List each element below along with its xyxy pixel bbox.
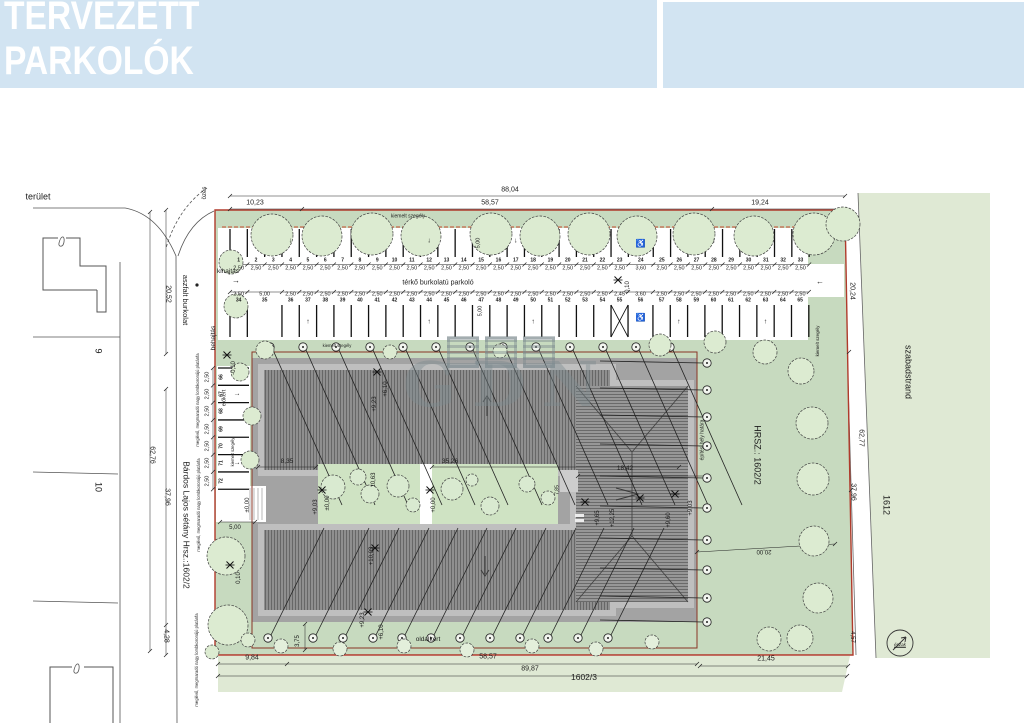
stall-dim: 2,50 <box>205 423 211 434</box>
dim-984: 9,84 <box>245 655 259 662</box>
stall-number: 45 <box>444 299 450 304</box>
stall-dim: 2,50 <box>580 266 591 272</box>
stall-arrow-icon: ↑ <box>764 319 768 326</box>
stall-number: 51 <box>548 299 554 304</box>
dim-6276: 62,76 <box>149 446 156 464</box>
stall-dim: 2,50 <box>389 266 400 272</box>
stall-number: 7 <box>341 258 344 263</box>
elev-965: +9,65 <box>595 510 601 525</box>
stall-number: 62 <box>745 299 751 304</box>
dim-428: 4,28 <box>163 629 170 643</box>
elev-1003-south: +10,03 <box>369 547 375 566</box>
stall-number: 26 <box>676 258 682 263</box>
plan-labels: terület özés 88,04 10,23 58,57 19,24 kie… <box>0 0 1024 723</box>
stall-number: 34 <box>236 299 242 304</box>
stall-arrow-icon: ↓ <box>712 238 716 245</box>
stall-dim: 2,50 <box>303 292 314 298</box>
label-oldalkert: oldalkert <box>416 637 441 644</box>
stall-dim: 2,50 <box>372 292 383 298</box>
stall-dim: 2,50 <box>205 475 211 486</box>
stall-number: 39 <box>340 299 346 304</box>
stall-dim: 2,50 <box>320 292 331 298</box>
stall-dim: 2,50 <box>691 292 702 298</box>
stall-dim: 2,50 <box>709 266 720 272</box>
dim-500-row1: 5,00 <box>476 238 482 249</box>
accessible-parking-icon: ♿ <box>636 240 646 248</box>
stall-number: 60 <box>711 299 717 304</box>
label-kiemelt-top: kiemelt szegély <box>391 215 425 220</box>
stall-dim: 2,50 <box>268 266 279 272</box>
elev-p000-court: +0,00 <box>431 497 437 512</box>
label-kiemelt-mid: kiemelt szegély <box>323 344 352 348</box>
elev-610-north: +6,10 <box>383 381 389 396</box>
stall-dim: 2,50 <box>205 441 211 452</box>
stall-number: 38 <box>322 299 328 304</box>
stall-dim: 2,50 <box>708 292 719 298</box>
label-parcel-9: 9 <box>94 348 103 353</box>
stall-number: 59 <box>693 299 699 304</box>
stall-dim: 2,50 <box>205 371 211 382</box>
stall-number: 49 <box>513 299 519 304</box>
accessible-parking-icon: ♿ <box>636 314 646 322</box>
stall-dim: 2,50 <box>285 266 296 272</box>
stall-dim: 2,50 <box>441 266 452 272</box>
elev-903-a: +9,03 <box>313 499 319 514</box>
stall-dim: 2,50 <box>337 266 348 272</box>
stall-number: 54 <box>600 299 606 304</box>
stall-dim: 2,50 <box>760 266 771 272</box>
stall-number: 29 <box>728 258 734 263</box>
stall-dim: 2,50 <box>795 292 806 298</box>
stall-number: 9 <box>376 258 379 263</box>
stall-number: 5 <box>307 258 310 263</box>
stall-arrow-icon: ↑ <box>427 319 431 326</box>
elev-000-court: ±0,00 <box>325 496 331 511</box>
dim-500-left: 5,00 <box>229 525 241 531</box>
stall-arrow-icon: ↓ <box>289 238 293 245</box>
stall-number: 18 <box>530 258 536 263</box>
stall-dim: 2,50 <box>407 292 418 298</box>
stall-number: 58 <box>676 299 682 304</box>
stall-number: 53 <box>582 299 588 304</box>
stall-dim: 2,50 <box>458 266 469 272</box>
stall-number: 55 <box>617 299 623 304</box>
stall-dim: 2,50 <box>407 266 418 272</box>
stall-dim: 2,50 <box>424 266 435 272</box>
stall-arrow-icon: → <box>234 460 241 467</box>
elev-z010-a: 0,10 <box>625 281 631 293</box>
stall-number: 33 <box>798 258 804 263</box>
label-behajtas: behajtás <box>211 326 218 351</box>
stall-dim: 2,50 <box>233 266 244 272</box>
stall-number: 31 <box>763 258 769 263</box>
stall-dim: 2,50 <box>205 389 211 400</box>
stall-dim: 2,50 <box>528 266 539 272</box>
label-bardos: Bárdos Lajos sétány Hrsz.:1602/2 <box>182 461 191 589</box>
note-platan-2: meglévő, megmaradó nagy lombkoronájú pla… <box>197 458 201 551</box>
label-terulet: terület <box>25 193 50 202</box>
stall-number: 52 <box>565 299 571 304</box>
stall-arrow-icon: ↑ <box>306 319 310 326</box>
stall-number: 13 <box>444 258 450 263</box>
dim-2024: 20,24 <box>849 282 856 300</box>
stall-number: 25 <box>659 258 665 263</box>
dim-8804: 88,04 <box>501 187 519 194</box>
label-parcel-1602-3: 1602/3 <box>571 673 597 682</box>
stall-dim: 5,00 <box>259 292 270 298</box>
stall-number: 1 <box>237 258 240 263</box>
stall-dim: 2,50 <box>476 292 487 298</box>
elev-903-east: +9,03 <box>688 500 694 515</box>
stall-number: 24 <box>638 258 644 263</box>
stall-number: 42 <box>392 299 398 304</box>
stall-number: 40 <box>357 299 363 304</box>
label-parcel-10: 10 <box>94 482 103 492</box>
stall-arrow-icon: ↓ <box>427 238 431 245</box>
dim-5857-top: 58,57 <box>481 200 499 207</box>
stall-number: 22 <box>600 258 606 263</box>
stall-number: 6 <box>324 258 327 263</box>
label-aszfalt: aszfalt burkolat <box>181 275 189 325</box>
stall-number: 43 <box>409 299 415 304</box>
stall-number: 32 <box>780 258 786 263</box>
stall-dim: 2,50 <box>510 292 521 298</box>
stall-dim: 2,50 <box>372 266 383 272</box>
stall-number: 65 <box>797 299 803 304</box>
elev-000-corridor: ±0,00 <box>245 498 251 513</box>
stall-dim: 2,50 <box>476 266 487 272</box>
stall-dim: 2,50 <box>545 292 556 298</box>
label-terko: térkő burkolatú parkoló <box>402 280 473 287</box>
note-platan-3: meglévő, megmaradó nagy lombkoronájú pla… <box>195 613 199 706</box>
stall-number: 67 <box>220 391 225 397</box>
label-szabadstrand: szabadstrand <box>904 345 913 399</box>
elev-z010-b: 0,10 <box>236 572 242 584</box>
stall-number: 69 <box>220 426 225 432</box>
stall-number: 36 <box>288 299 294 304</box>
stall-dim: 2,50 <box>726 266 737 272</box>
dim-835: 8,35 <box>281 459 294 466</box>
stall-dim: 2,50 <box>743 266 754 272</box>
elev-923-north: +9,23 <box>372 396 378 411</box>
stall-number: 61 <box>728 299 734 304</box>
stall-dim: 2,50 <box>795 266 806 272</box>
stall-number: 70 <box>220 443 225 449</box>
aisle-arrow-icon: ← <box>816 278 824 286</box>
stall-number: 30 <box>746 258 752 263</box>
stall-dim: 2,50 <box>355 266 366 272</box>
stall-dim: 2,50 <box>777 292 788 298</box>
stall-number: 11 <box>409 258 414 263</box>
site-plan-page: TERVEZETT PARKOLÓK <box>0 0 1024 723</box>
stall-dim: 2,50 <box>493 266 504 272</box>
stall-arrow-icon: ↑ <box>677 319 681 326</box>
stall-number: 10 <box>392 258 398 263</box>
stall-number: 41 <box>374 299 380 304</box>
stall-number: 20 <box>565 258 571 263</box>
dim-1842: 18,42 <box>617 466 633 473</box>
stall-dim: 2,50 <box>614 266 625 272</box>
stall-dim: 2,50 <box>320 266 331 272</box>
stall-dim: 2,50 <box>674 266 685 272</box>
stall-dim: 2,50 <box>233 292 244 298</box>
stall-dim: 2,50 <box>424 292 435 298</box>
stall-number: 4 <box>289 258 292 263</box>
stall-dim: 2,50 <box>657 266 668 272</box>
label-kiemelt-right: kiemelt szegély <box>816 326 821 357</box>
stall-dim: 2,45 <box>614 292 625 298</box>
dim-3526: 35,26 <box>442 459 458 466</box>
stall-number: 28 <box>711 258 717 263</box>
elev-923-south: +9,23 <box>360 612 366 627</box>
stall-number: 44 <box>426 299 432 304</box>
stall-number: 3 <box>272 258 275 263</box>
stall-dim: 2,50 <box>493 292 504 298</box>
dim-2000: 20,00 <box>756 548 771 554</box>
stall-dim: 2,50 <box>778 266 789 272</box>
stall-number: 46 <box>461 299 467 304</box>
stall-arrow-icon: ↓ <box>514 238 518 245</box>
elev-960: +9,60 <box>666 512 672 527</box>
stall-number: 57 <box>659 299 665 304</box>
dim-6277: 62,77 <box>858 429 865 447</box>
stall-number: 15 <box>478 258 484 263</box>
stall-dim: 2,50 <box>303 266 314 272</box>
stall-number: 72 <box>220 478 225 484</box>
stall-number: 71 <box>220 460 225 466</box>
stall-dim: 2,50 <box>562 266 573 272</box>
stall-dim: 2,50 <box>597 266 608 272</box>
dim-1924: 19,24 <box>751 200 769 207</box>
dim-1023: 10,23 <box>246 200 264 207</box>
stall-number: 19 <box>548 258 554 263</box>
stall-dim: 2,50 <box>528 292 539 298</box>
stall-number: 47 <box>478 299 484 304</box>
stall-number: 35 <box>262 299 268 304</box>
stall-number: 16 <box>496 258 502 263</box>
stall-dim: 2,50 <box>337 292 348 298</box>
stall-dim: 2,50 <box>656 292 667 298</box>
stall-arrow-icon: ↑ <box>531 319 535 326</box>
stall-dim: 2,50 <box>674 292 685 298</box>
stall-dim: 2,50 <box>355 292 366 298</box>
aisle-arrow-icon: → <box>232 277 240 285</box>
dim-1063: 10,63 <box>371 472 377 487</box>
stall-dim: 2,50 <box>545 266 556 272</box>
stall-dim: 2,50 <box>458 292 469 298</box>
stall-number: 12 <box>426 258 432 263</box>
stall-number: 23 <box>617 258 623 263</box>
stall-number: 37 <box>305 299 311 304</box>
dim-3796-left: 37,96 <box>164 488 171 506</box>
stall-number: 17 <box>513 258 519 263</box>
stall-dim: 2,50 <box>691 266 702 272</box>
stall-dim: 2,50 <box>510 266 521 272</box>
dim-2052: 20,52 <box>165 285 172 303</box>
stall-dim: 3,60 <box>635 266 646 272</box>
stall-dim: 2,50 <box>597 292 608 298</box>
elev-m010-a: -0,10 <box>231 361 237 375</box>
stall-dim: 2,50 <box>441 292 452 298</box>
dim-375: 3,75 <box>295 635 301 647</box>
label-parcel-1612: 1612 <box>882 495 891 515</box>
stall-arrow-icon: → <box>234 390 241 397</box>
dim-3796-right: 37,96 <box>850 483 857 501</box>
dim-500-row2: 5,00 <box>478 306 484 317</box>
label-ozes: özés <box>202 187 208 200</box>
dim-8987: 89,87 <box>521 666 539 673</box>
label-epitesi: építési hely határa <box>701 420 706 461</box>
stall-dim: 2,50 <box>743 292 754 298</box>
stall-dim: 2,50 <box>389 292 400 298</box>
stall-dim: 2,50 <box>285 292 296 298</box>
stall-number: 56 <box>638 299 644 304</box>
stall-number: 2 <box>255 258 258 263</box>
label-eszak: észak <box>894 643 906 648</box>
stall-number: 64 <box>780 299 786 304</box>
stall-number: 63 <box>763 299 769 304</box>
elev-610-south: +6,10 <box>379 624 385 639</box>
dim-2145: 21,45 <box>757 656 775 663</box>
label-hrsz: HRSZ.: 1602/2 <box>753 425 762 485</box>
stall-dim: 2,50 <box>251 266 262 272</box>
stall-dim: 2,50 <box>205 406 211 417</box>
dim-785: 7,85 <box>556 485 561 495</box>
stall-number: 21 <box>582 258 588 263</box>
dim-457: 4,57 <box>849 631 855 643</box>
stall-number: 27 <box>694 258 700 263</box>
stall-number: 48 <box>496 299 502 304</box>
stall-dim: 3,60 <box>635 292 646 298</box>
note-platan-1: meglévő, megmaradó nagy lombkoronájú pla… <box>196 353 200 446</box>
stall-number: 68 <box>220 409 225 415</box>
elev-1225: +12,25 <box>610 509 616 528</box>
dim-5857-bottom: 58,57 <box>479 654 497 661</box>
stall-dim: 2,50 <box>580 292 591 298</box>
stall-number: 50 <box>530 299 536 304</box>
stall-dim: 2,50 <box>205 458 211 469</box>
stall-number: 66 <box>220 374 225 380</box>
stall-dim: 2,50 <box>562 292 573 298</box>
stall-number: 14 <box>461 258 467 263</box>
stall-number: 8 <box>359 258 362 263</box>
stall-dim: 2,50 <box>726 292 737 298</box>
stall-dim: 2,50 <box>760 292 771 298</box>
